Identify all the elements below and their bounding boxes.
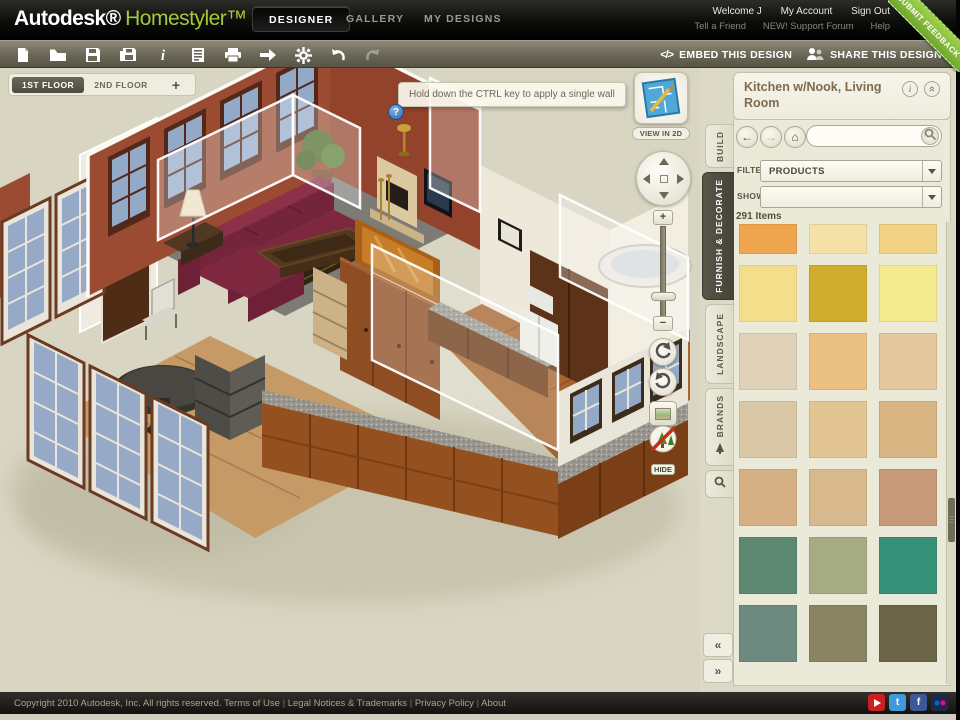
product-swatch[interactable] — [879, 469, 937, 526]
privacy-link[interactable]: Privacy Policy — [415, 698, 481, 709]
product-swatch[interactable] — [879, 605, 937, 662]
info-button[interactable]: i — [152, 44, 174, 66]
filter-dropdown[interactable]: PRODUCTS — [760, 160, 942, 182]
new-document-button[interactable] — [12, 44, 34, 66]
product-swatch[interactable] — [879, 537, 937, 594]
product-swatch[interactable] — [809, 537, 867, 594]
footer-bar: Copyright 2010 Autodesk, Inc. All rights… — [0, 692, 956, 714]
snapshot-button[interactable] — [649, 401, 677, 426]
product-swatch[interactable] — [809, 605, 867, 662]
support-forum-link[interactable]: NEW! Support Forum — [763, 21, 854, 32]
product-swatch[interactable] — [739, 605, 797, 662]
submit-feedback-ribbon[interactable]: SUBMIT FEEDBACK — [888, 0, 960, 72]
about-link[interactable]: About — [481, 698, 506, 709]
embed-design-button[interactable]: </> EMBED THIS DESIGN — [660, 49, 792, 61]
nav-tab-my-designs[interactable]: MY DESIGNS — [424, 6, 502, 32]
snapshot-icon — [655, 408, 671, 420]
tree-icon — [714, 441, 726, 459]
catalog-search-input[interactable] — [815, 127, 919, 145]
logo-autodesk: Autodesk® — [14, 7, 121, 30]
share-people-icon — [806, 47, 824, 64]
design-canvas[interactable]: 1ST FLOOR 2ND FLOOR + Hold down the CTRL… — [0, 68, 700, 692]
chevron-down-icon — [928, 169, 936, 174]
zoom-slider-handle[interactable] — [651, 292, 676, 301]
pan-left-icon[interactable] — [643, 174, 650, 184]
rotate-ccw-icon — [654, 341, 672, 364]
product-swatch[interactable] — [739, 537, 797, 594]
category-title-card: Kitchen w/Nook, Living Room i » — [733, 72, 951, 120]
panel-scrollbar-thumb[interactable] — [948, 498, 955, 542]
pan-down-icon[interactable] — [659, 192, 669, 199]
top-bar: Autodesk® Homestyler™ BETA DESIGNER GALL… — [0, 0, 956, 40]
flickr-icon[interactable] — [931, 694, 948, 711]
product-swatch[interactable] — [739, 469, 797, 526]
help-badge-icon[interactable]: ? — [388, 104, 404, 120]
swatch-grid — [739, 224, 937, 662]
chevron-down-icon — [928, 195, 936, 200]
panel-collapse-button[interactable]: » — [924, 81, 940, 97]
save-button[interactable] — [82, 44, 104, 66]
product-swatch[interactable] — [809, 333, 867, 390]
export-button[interactable] — [257, 44, 279, 66]
filter-value: PRODUCTS — [769, 166, 825, 177]
screen-edge-right — [956, 0, 960, 720]
product-swatch[interactable] — [809, 469, 867, 526]
catalog-search-button[interactable] — [921, 127, 939, 145]
svg-text:i: i — [161, 48, 166, 63]
undo-icon — [330, 48, 346, 62]
search-icon — [924, 127, 936, 145]
twitter-icon[interactable]: t — [889, 694, 906, 711]
catalog-back-button[interactable]: ← — [736, 126, 758, 148]
save-as-icon — [119, 47, 137, 63]
redo-button[interactable] — [362, 44, 384, 66]
main-toolbar: i </> EMBED THIS DESIGN SHARE THIS DESIG… — [0, 40, 956, 68]
product-swatch[interactable] — [739, 333, 797, 390]
product-swatch[interactable] — [739, 401, 797, 458]
items-count: 291 Items — [736, 211, 782, 222]
tab-brands[interactable]: BRANDS — [705, 388, 734, 466]
info-icon: i — [156, 47, 170, 63]
panel-minimize-button[interactable]: » — [703, 659, 733, 683]
notes-button[interactable] — [187, 44, 209, 66]
panel-expand-button[interactable]: « — [703, 633, 733, 657]
pan-center-icon[interactable] — [660, 175, 668, 183]
sign-out-link[interactable]: Sign Out — [851, 6, 890, 17]
social-links: t f — [868, 694, 948, 711]
floor-tab-1st[interactable]: 1ST FLOOR — [12, 77, 84, 93]
homestyler-app: Autodesk® Homestyler™ BETA DESIGNER GALL… — [0, 0, 960, 720]
catalog-home-button[interactable]: ⌂ — [784, 126, 806, 148]
copyright-text: Copyright 2010 Autodesk, Inc. All rights… — [14, 698, 222, 709]
floor-tab-bar: 1ST FLOOR 2ND FLOOR + — [8, 73, 196, 96]
embed-code-icon: </> — [660, 49, 673, 61]
youtube-icon[interactable] — [868, 694, 885, 711]
welcome-user-link[interactable]: Welcome J — [713, 6, 762, 17]
settings-button[interactable] — [292, 44, 314, 66]
open-folder-icon — [49, 47, 67, 63]
logo-homestyler: Homestyler™ — [125, 7, 247, 30]
design-canvas-3d-view[interactable] — [0, 68, 700, 692]
toolbar-icon-group: i — [12, 44, 384, 66]
search-tab-icon — [714, 475, 726, 493]
tab-search[interactable] — [705, 470, 734, 498]
feedback-ribbon-corner: SUBMIT FEEDBACK — [888, 0, 960, 72]
rotate-cw-icon — [654, 371, 672, 394]
rotate-cw-button[interactable] — [649, 368, 677, 396]
undo-button[interactable] — [327, 44, 349, 66]
product-swatch[interactable] — [809, 224, 867, 254]
panel-scrollbar[interactable] — [946, 222, 955, 684]
product-swatch[interactable] — [739, 265, 797, 322]
product-swatch[interactable] — [809, 265, 867, 322]
show-dropdown[interactable] — [760, 186, 942, 208]
open-button[interactable] — [47, 44, 69, 66]
category-title: Kitchen w/Nook, Living Room — [744, 80, 914, 111]
settings-gear-icon — [295, 47, 312, 64]
tab-landscape[interactable]: LANDSCAPE — [705, 304, 734, 384]
zoom-slider-track[interactable] — [660, 226, 666, 318]
add-floor-button[interactable]: + — [172, 77, 180, 93]
hide-landscape-button[interactable]: HIDE — [645, 424, 681, 477]
view-in-2d-button[interactable]: VIEW IN 2D — [632, 72, 690, 140]
save-icon — [85, 47, 101, 63]
tab-furnish-decorate[interactable]: FURNISH & DECORATE — [702, 172, 734, 300]
catalog-search — [806, 125, 942, 147]
tell-a-friend-link[interactable]: Tell a Friend — [694, 21, 746, 32]
print-button[interactable] — [222, 44, 244, 66]
rotate-ccw-button[interactable] — [649, 338, 677, 366]
nav-tab-designer[interactable]: DESIGNER — [252, 6, 350, 32]
product-swatch[interactable] — [879, 224, 937, 254]
hide-label: HIDE — [651, 464, 675, 475]
my-account-link[interactable]: My Account — [781, 6, 833, 17]
pan-pad[interactable] — [636, 151, 691, 206]
legal-link[interactable]: Legal Notices & Trademarks — [288, 698, 415, 709]
ctrl-key-tooltip: Hold down the CTRL key to apply a single… — [398, 82, 626, 107]
facebook-icon[interactable]: f — [910, 694, 927, 711]
terms-link[interactable]: Terms of Use — [224, 698, 288, 709]
view-in-2d-label: VIEW IN 2D — [632, 127, 690, 140]
product-swatch[interactable] — [739, 224, 797, 254]
product-swatch[interactable] — [879, 333, 937, 390]
redo-icon — [365, 48, 381, 62]
user-links: Welcome J My Account Sign Out Tell a Fri… — [680, 6, 890, 32]
export-arrow-icon — [259, 48, 277, 62]
zoom-out-button[interactable]: − — [653, 316, 673, 331]
pan-up-icon[interactable] — [659, 158, 669, 165]
product-swatch[interactable] — [879, 401, 937, 458]
save-as-button[interactable] — [117, 44, 139, 66]
new-document-icon — [15, 47, 31, 63]
app-logo: Autodesk® Homestyler™ BETA — [14, 7, 280, 31]
notes-icon — [191, 47, 205, 63]
pan-right-icon[interactable] — [677, 174, 684, 184]
screen-edge-bottom — [0, 714, 956, 720]
nav-tab-gallery[interactable]: GALLERY — [346, 6, 404, 32]
catalog-forward-button[interactable]: → — [760, 126, 782, 148]
embed-design-label: EMBED THIS DESIGN — [679, 49, 792, 61]
product-swatch[interactable] — [809, 401, 867, 458]
print-icon — [224, 47, 242, 63]
category-info-button[interactable]: i — [902, 81, 918, 97]
zoom-in-button[interactable]: + — [653, 210, 673, 225]
catalog-panel: BUILD FURNISH & DECORATE LANDSCAPE BRAND… — [700, 68, 956, 692]
blueprint-icon — [634, 72, 688, 124]
floor-tab-2nd[interactable]: 2ND FLOOR — [84, 77, 158, 93]
tab-build[interactable]: BUILD — [705, 124, 734, 168]
hide-tree-icon — [646, 441, 680, 458]
product-swatch[interactable] — [879, 265, 937, 322]
